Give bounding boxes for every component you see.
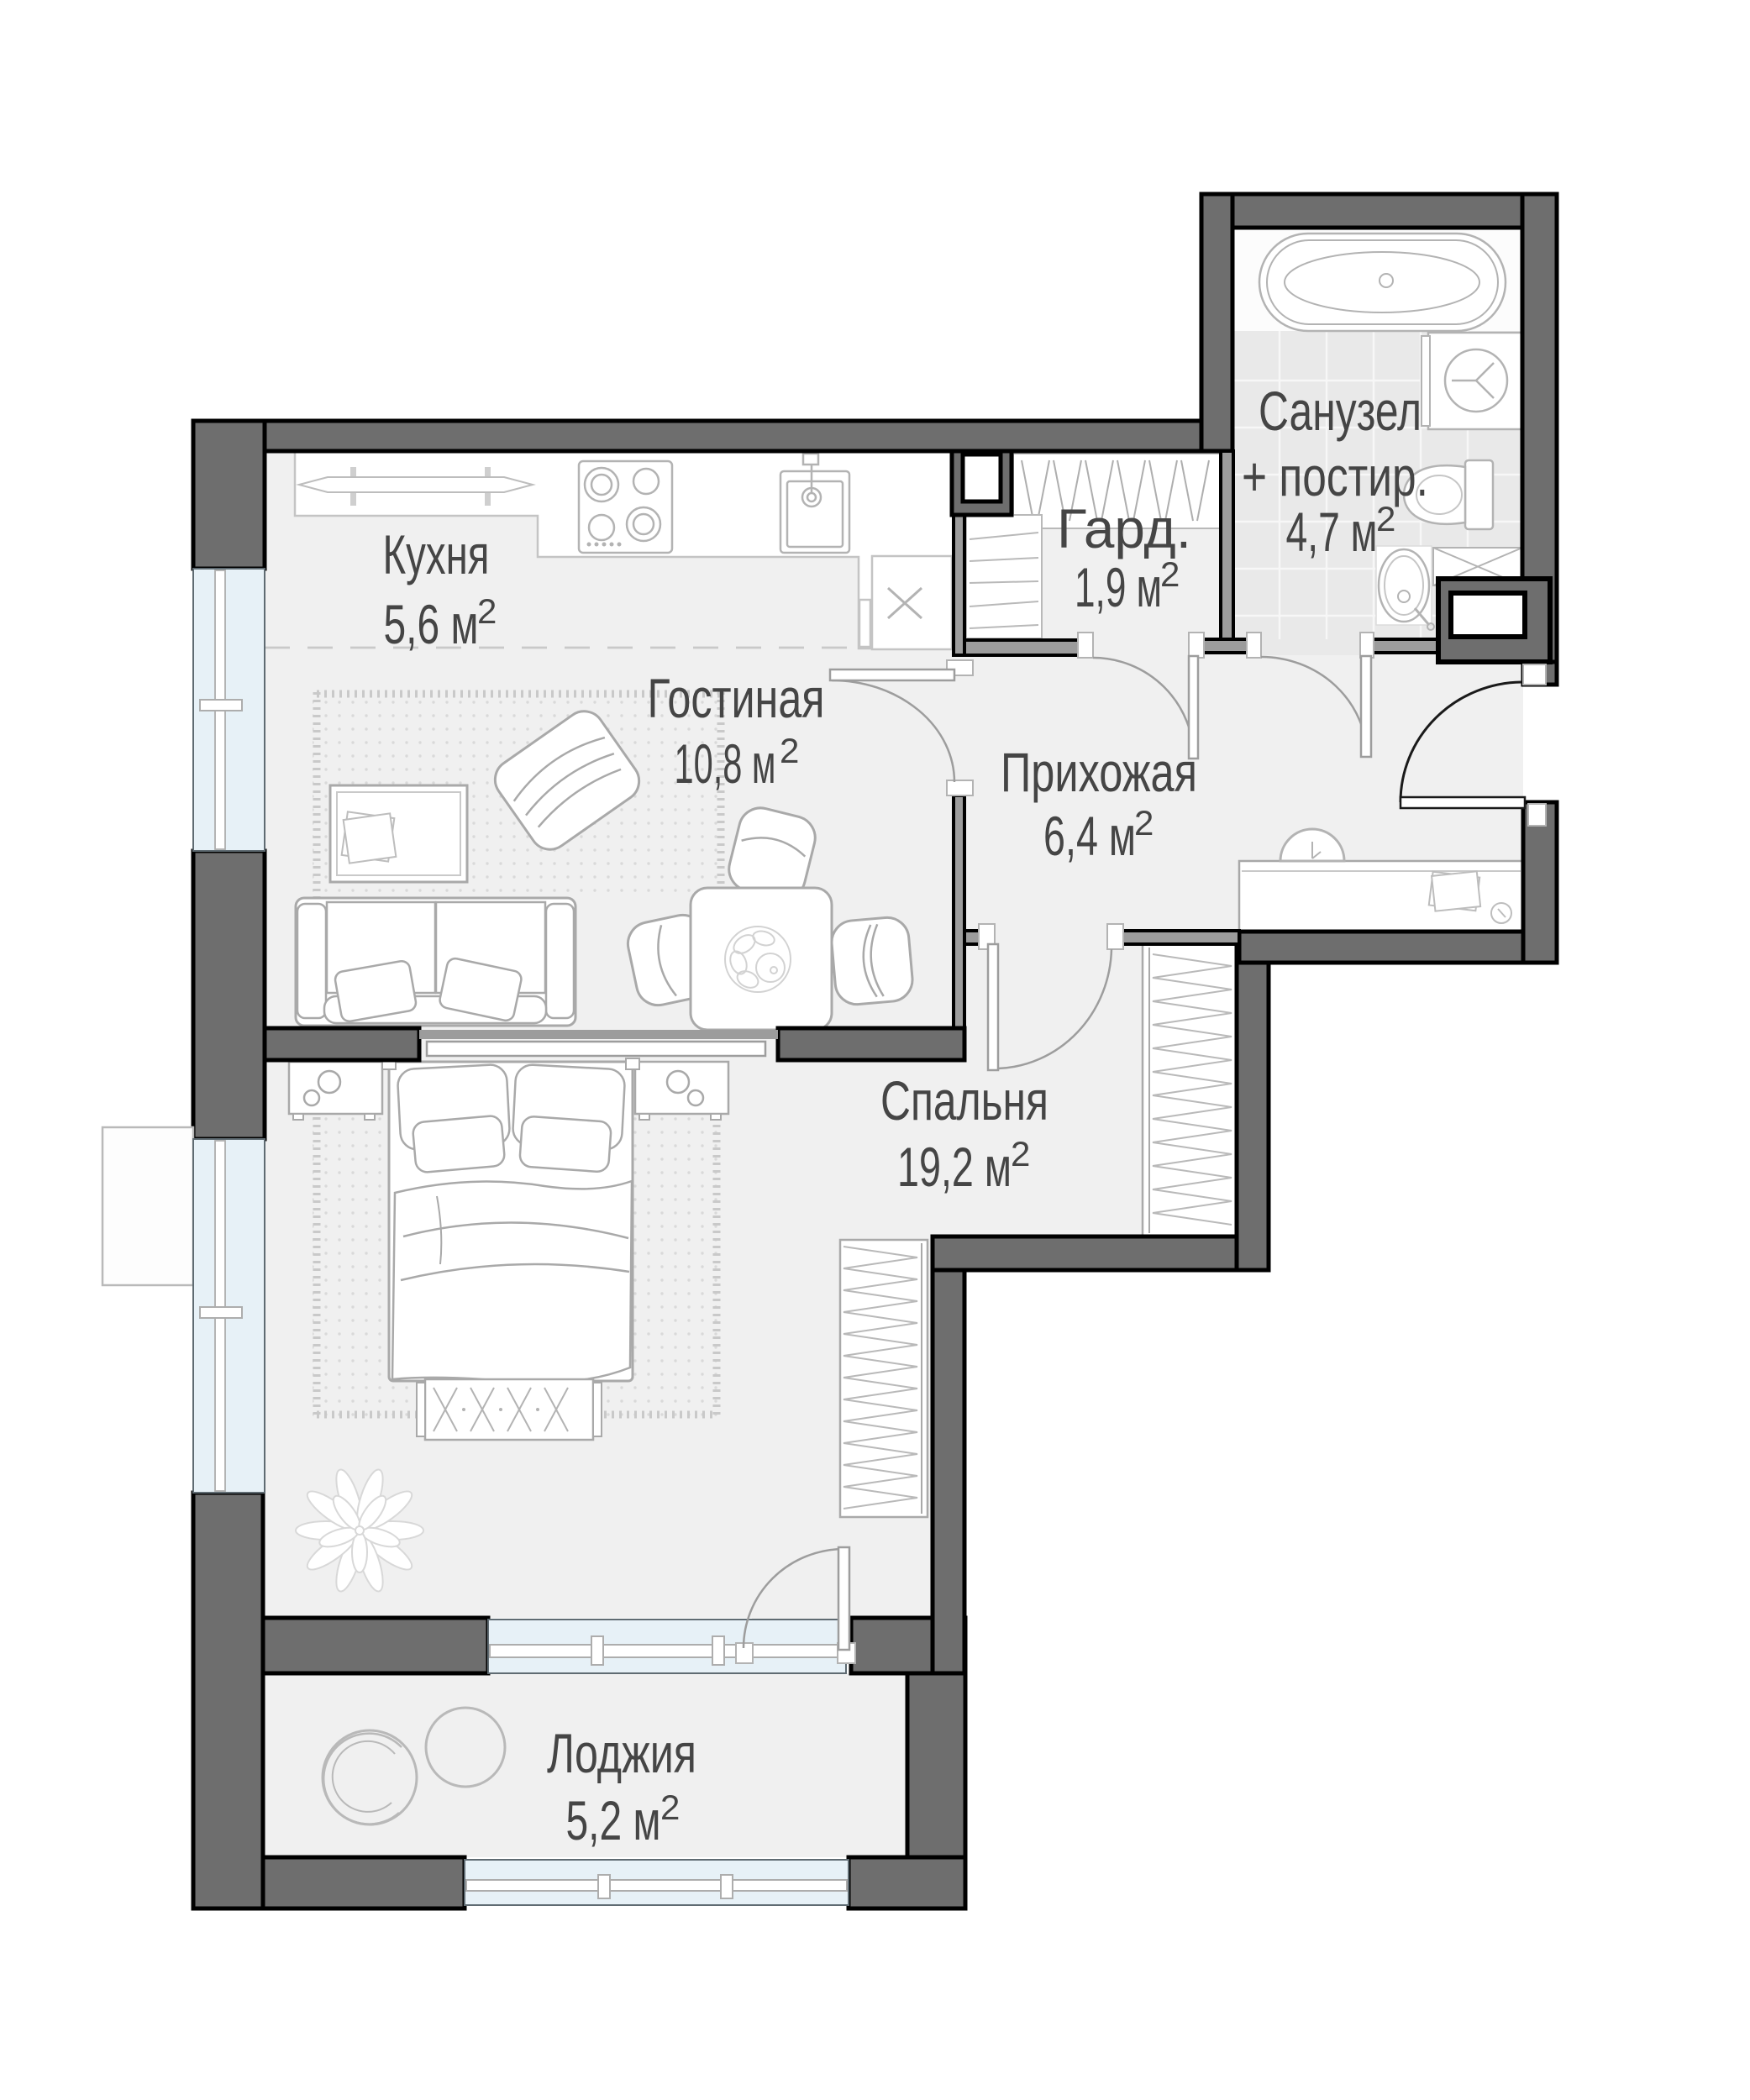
svg-text:Лоджия: Лоджия [547, 1722, 696, 1784]
svg-text:5,6 м: 5,6 м [384, 593, 479, 655]
svg-text:2: 2 [1376, 499, 1395, 538]
svg-text:2: 2 [660, 1788, 680, 1827]
svg-text:2: 2 [1160, 554, 1180, 594]
svg-text:Прихожая: Прихожая [1001, 741, 1197, 803]
svg-text:1,9 м: 1,9 м [1075, 556, 1162, 618]
svg-text:5,2 м: 5,2 м [566, 1789, 661, 1851]
svg-text:6,4 м: 6,4 м [1043, 805, 1136, 867]
svg-text:2: 2 [477, 591, 497, 631]
svg-text:Кухня: Кухня [383, 523, 490, 585]
svg-text:2: 2 [1134, 803, 1154, 843]
svg-text:2: 2 [1011, 1134, 1030, 1173]
svg-text:+ постир.: + постир. [1242, 445, 1428, 507]
svg-text:Санузел: Санузел [1259, 380, 1422, 442]
svg-text:Гостиная: Гостиная [648, 667, 825, 729]
svg-text:Гард.: Гард. [1057, 497, 1191, 559]
svg-text:19,2 м: 19,2 м [897, 1136, 1012, 1198]
svg-text:2: 2 [780, 731, 799, 770]
svg-text:Спальня: Спальня [880, 1069, 1048, 1131]
svg-text:4,7 м: 4,7 м [1286, 501, 1378, 563]
svg-text:10,8 м: 10,8 м [675, 732, 776, 795]
